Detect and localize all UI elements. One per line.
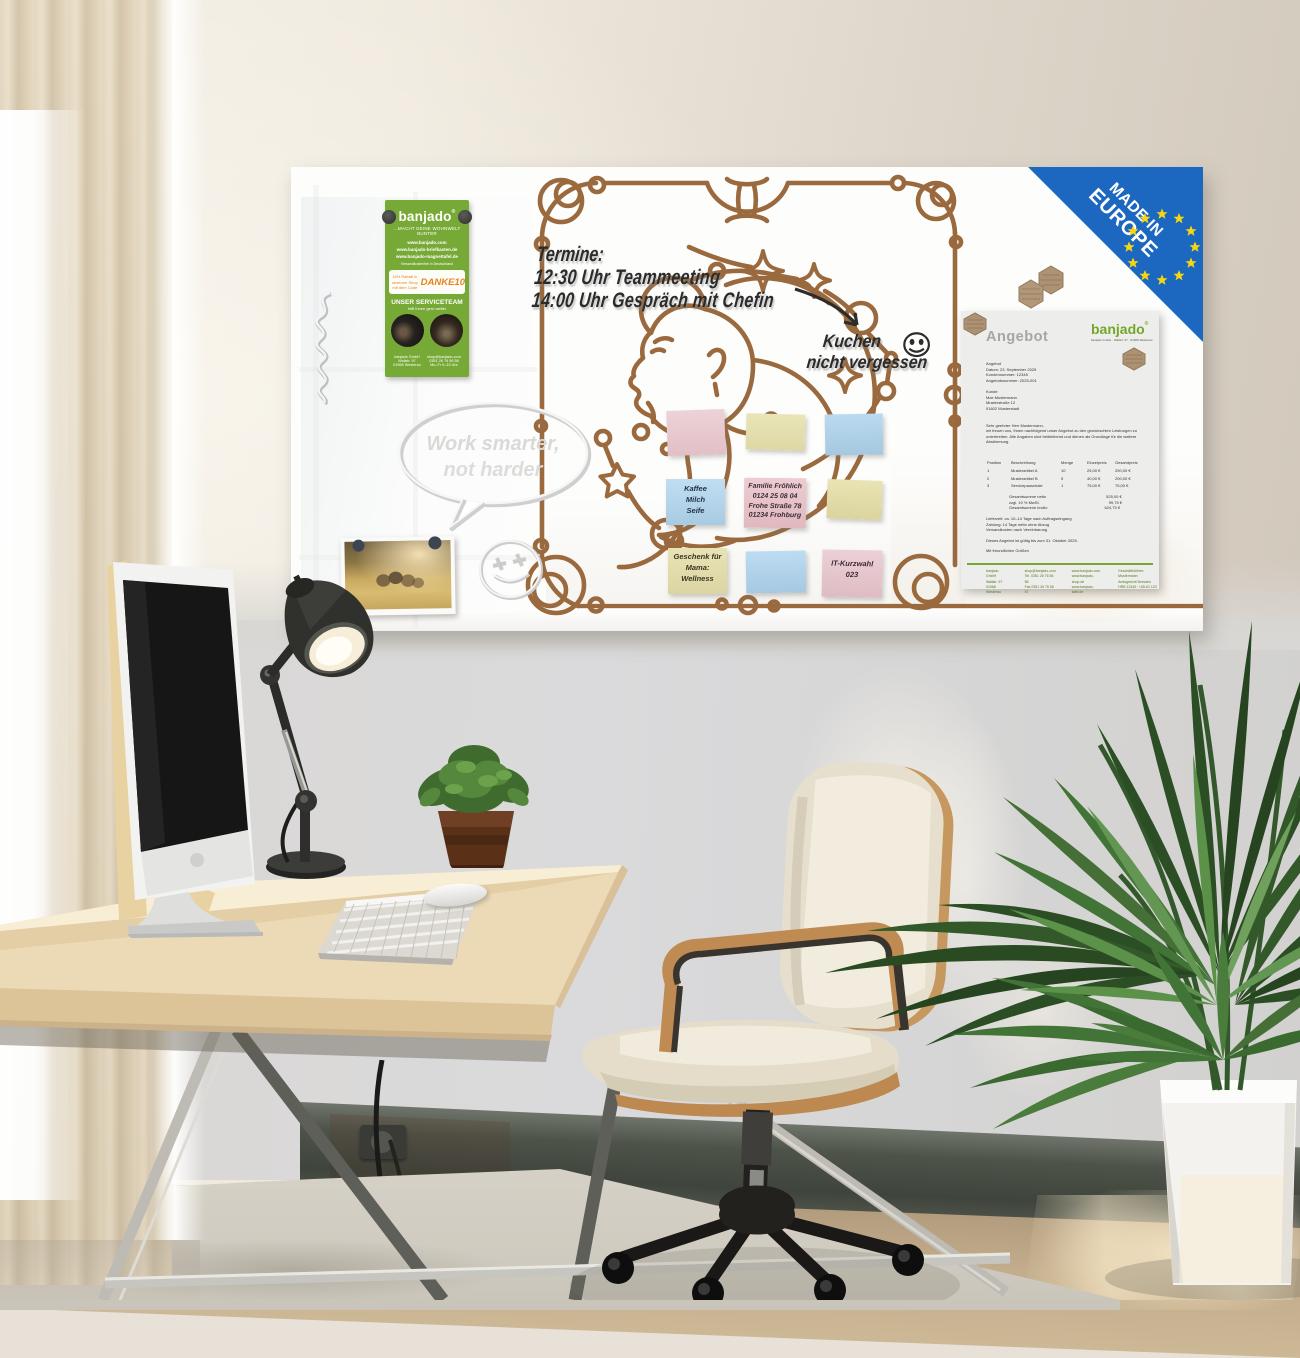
svg-text:not harder: not harder <box>444 459 544 481</box>
svg-text:Work smarter,: Work smarter, <box>426 433 559 455</box>
